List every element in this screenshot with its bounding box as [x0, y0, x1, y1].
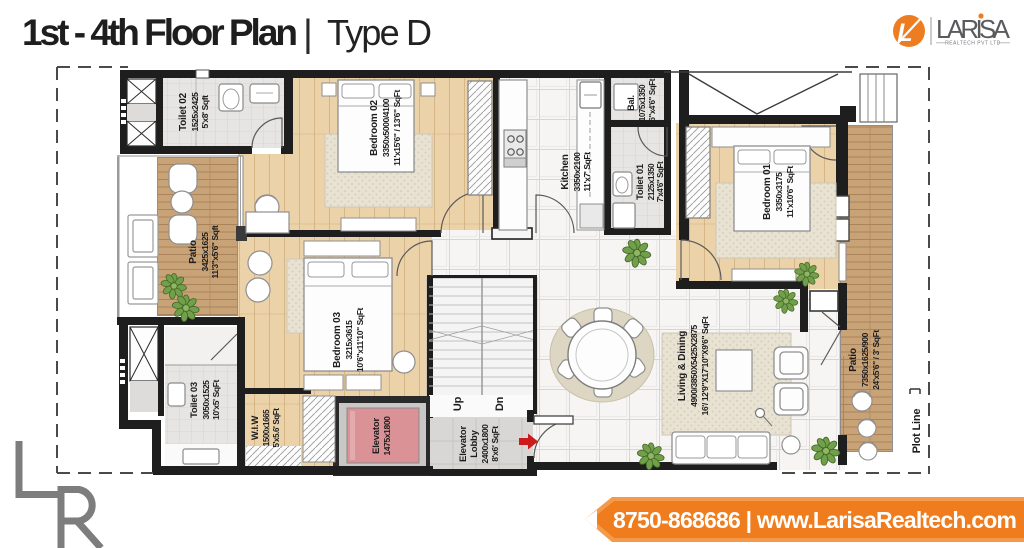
svg-text:Elevator: Elevator: [458, 426, 469, 462]
svg-text:Lobby: Lobby: [469, 429, 480, 457]
svg-text:3350x3175: 3350x3175: [774, 172, 784, 212]
svg-text:3425x1625: 3425x1625: [200, 232, 210, 272]
svg-text:Type D: Type D: [327, 12, 432, 53]
svg-text:Kitchen: Kitchen: [560, 154, 571, 189]
svg-text:8750-868686 | www.LarisaRealte: 8750-868686 | www.LarisaRealtech.com: [613, 507, 1017, 533]
svg-text:8'x6' SqFt: 8'x6' SqFt: [490, 426, 500, 462]
svg-text:Living & Dining: Living & Dining: [677, 331, 688, 401]
svg-text:2125x1350: 2125x1350: [647, 163, 656, 200]
svg-text:W.I.W: W.I.W: [250, 416, 261, 441]
svg-text:24'x5'6" / 3' SqFt: 24'x5'6" / 3' SqFt: [871, 330, 881, 390]
svg-text:Bal.: Bal.: [626, 95, 636, 111]
svg-text:Toilet 01: Toilet 01: [635, 163, 646, 200]
svg-text:16'/ 12'9"X17'10"X9'6" SqFt: 16'/ 12'9"X17'10"X9'6" SqFt: [700, 316, 710, 415]
svg-text:Bedroom 02: Bedroom 02: [369, 99, 380, 155]
svg-text:Plot Line: Plot Line: [911, 409, 923, 454]
svg-text:7350x1625/900: 7350x1625/900: [860, 332, 870, 387]
svg-text:1475x1800: 1475x1800: [382, 416, 392, 456]
svg-text:Up: Up: [452, 396, 464, 411]
svg-text:Toilet 02: Toilet 02: [178, 92, 189, 131]
svg-text:7'x4'6" SqFt: 7'x4'6" SqFt: [656, 161, 665, 202]
svg-text:11'3"x5'6" Sqft: 11'3"x5'6" Sqft: [210, 225, 220, 278]
svg-text:5'x5.6' SqFt: 5'x5.6' SqFt: [272, 408, 281, 448]
svg-text:1500x1665: 1500x1665: [262, 409, 271, 446]
svg-text:REALTECH PVT LTD: REALTECH PVT LTD: [945, 41, 1001, 47]
svg-text:1075x1350: 1075x1350: [638, 84, 647, 121]
svg-text:Dn: Dn: [494, 396, 506, 411]
svg-text:|: |: [303, 13, 313, 55]
svg-text:Bedroom 03: Bedroom 03: [332, 311, 343, 367]
svg-text:5'x8' Sqft: 5'x8' Sqft: [200, 95, 210, 129]
svg-text:1st - 4th Floor Plan: 1st - 4th Floor Plan: [22, 12, 298, 53]
svg-text:LARISA: LARISA: [936, 14, 1011, 44]
svg-text:3350x5000/4100: 3350x5000/4100: [381, 98, 391, 157]
svg-text:3'6"x4'6" SqFt: 3'6"x4'6" SqFt: [648, 78, 657, 127]
svg-text:Elevator: Elevator: [371, 418, 382, 454]
svg-text:4900/3850X5425X2875: 4900/3850X5425X2875: [689, 324, 699, 406]
svg-text:2400x1800: 2400x1800: [480, 424, 490, 464]
svg-text:10'6"x11'10" SqFt: 10'6"x11'10" SqFt: [355, 307, 365, 371]
svg-text:3350x2100: 3350x2100: [572, 152, 582, 192]
svg-text:Bedroom 01: Bedroom 01: [762, 163, 773, 219]
svg-text:L: L: [897, 19, 912, 47]
svg-text:1525x2425: 1525x2425: [190, 92, 200, 132]
svg-text:Toilet 03: Toilet 03: [189, 382, 200, 418]
svg-text:11'x7' SqFt: 11'x7' SqFt: [582, 152, 592, 192]
svg-text:3215x3615: 3215x3615: [344, 320, 354, 360]
svg-text:Patio: Patio: [848, 348, 859, 372]
svg-text:10'x5' SqFt: 10'x5' SqFt: [211, 380, 221, 420]
svg-text:11'x10'6" SqFt: 11'x10'6" SqFt: [785, 166, 795, 218]
svg-text:11'x15'6" / 13'6" SqFt: 11'x15'6" / 13'6" SqFt: [392, 90, 402, 166]
svg-text:Patio: Patio: [188, 240, 199, 264]
svg-text:3050x1525: 3050x1525: [201, 380, 211, 420]
